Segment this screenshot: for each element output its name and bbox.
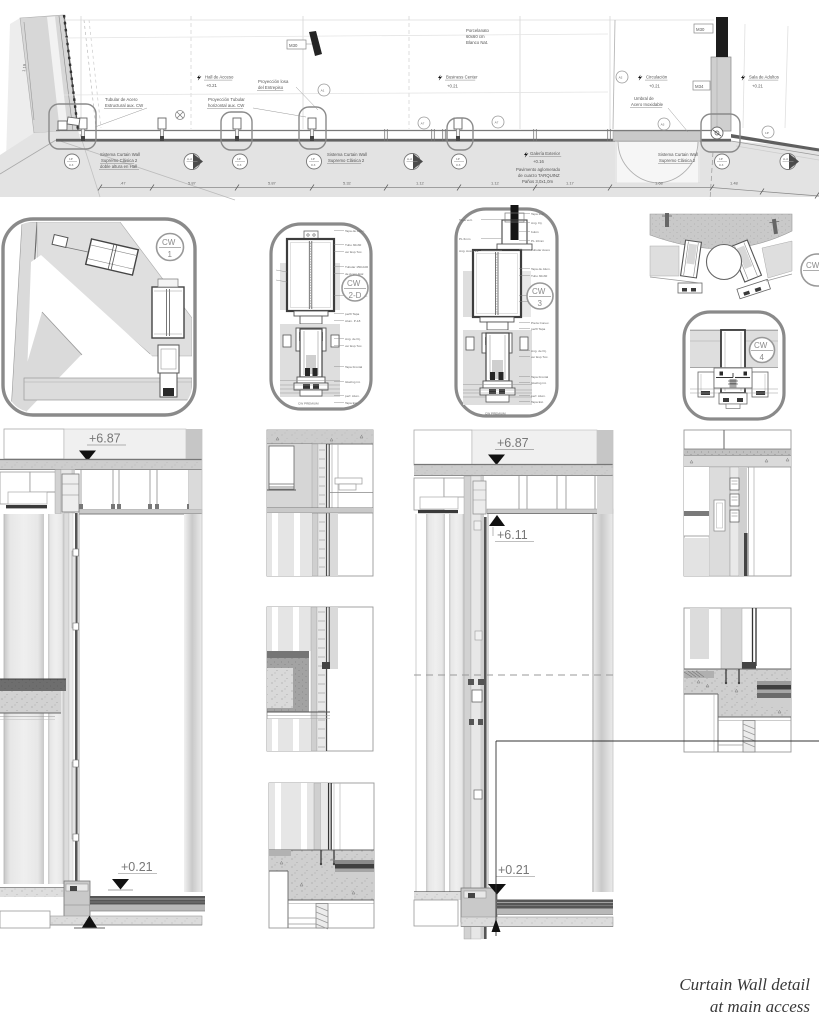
svg-text:Estructural aux. CW: Estructural aux. CW bbox=[105, 103, 144, 108]
svg-text:M30: M30 bbox=[289, 43, 298, 48]
svg-text:60x60 cm: 60x60 cm bbox=[466, 34, 485, 39]
svg-text:A7: A7 bbox=[495, 121, 499, 125]
svg-text:Sala de Adultos: Sala de Adultos bbox=[749, 75, 779, 80]
svg-text:Hall de Acceso: Hall de Acceso bbox=[205, 75, 234, 80]
svg-text:Glazing int.: Glazing int. bbox=[345, 380, 361, 384]
svg-text:Curtain Wall detail: Curtain Wall detail bbox=[679, 975, 810, 994]
svg-text:+0.21: +0.21 bbox=[206, 83, 217, 88]
svg-text:0.3: 0.3 bbox=[237, 163, 242, 167]
svg-text:de cuarzo TARQUINZ: de cuarzo TARQUINZ bbox=[518, 173, 560, 178]
svg-text:1P: 1P bbox=[765, 131, 769, 135]
svg-text:Supremo Clásica 2: Supremo Clásica 2 bbox=[101, 158, 138, 163]
svg-text:Tubular Acero: Tubular Acero bbox=[531, 248, 550, 252]
svg-text:1.48: 1.48 bbox=[730, 181, 739, 186]
svg-text:A1: A1 bbox=[321, 89, 325, 93]
svg-text:CW: CW bbox=[532, 287, 546, 296]
svg-text:perf. Alum.: perf. Alum. bbox=[345, 394, 360, 398]
svg-text:Acero Inoxidable: Acero Inoxidable bbox=[631, 102, 664, 107]
svg-text:Tapa Frontal: Tapa Frontal bbox=[531, 375, 549, 379]
svg-text:M34: M34 bbox=[695, 84, 704, 89]
svg-text:0.3: 0.3 bbox=[456, 163, 461, 167]
svg-text:+0.21: +0.21 bbox=[649, 84, 660, 89]
svg-text:Glazing int.: Glazing int. bbox=[531, 381, 547, 385]
svg-text:3: 3 bbox=[538, 299, 543, 308]
svg-text:Paños 3,0x1,0m: Paños 3,0x1,0m bbox=[522, 179, 553, 184]
svg-text:perfil Tapa: perfil Tapa bbox=[345, 312, 359, 316]
svg-text:perf. Alum.: perf. Alum. bbox=[531, 394, 546, 398]
svg-text:doble altura en Hall: doble altura en Hall bbox=[100, 164, 137, 169]
svg-text:Business Center: Business Center bbox=[446, 75, 478, 80]
svg-text:4: 4 bbox=[760, 353, 765, 362]
svg-text:A2: A2 bbox=[619, 76, 623, 80]
svg-text:Supremo Clásica 2: Supremo Clásica 2 bbox=[659, 158, 696, 163]
svg-text:Alum. P-18: Alum. P-18 bbox=[345, 319, 361, 323]
svg-text:Pieza Conex.: Pieza Conex. bbox=[531, 321, 550, 325]
svg-text:Tapa de Alum.: Tapa de Alum. bbox=[531, 267, 551, 271]
svg-text:1P: 1P bbox=[237, 157, 241, 161]
svg-text:+0.21: +0.21 bbox=[498, 863, 530, 877]
svg-text:Sistema Curtain Wall: Sistema Curtain Wall bbox=[100, 152, 140, 157]
svg-text:+0.21: +0.21 bbox=[752, 84, 763, 89]
svg-text:1.17: 1.17 bbox=[566, 181, 575, 186]
svg-text:perfil Tapa: perfil Tapa bbox=[531, 327, 545, 331]
svg-text:0.3: 0.3 bbox=[311, 163, 316, 167]
svg-text:horizontal aux. CW: horizontal aux. CW bbox=[208, 103, 245, 108]
svg-text:.47: .47 bbox=[120, 181, 126, 186]
svg-text:Tapa sup.: Tapa sup. bbox=[531, 212, 545, 216]
svg-text:1P: 1P bbox=[456, 157, 460, 161]
svg-text:A3: A3 bbox=[661, 123, 665, 127]
svg-text:+0.21: +0.21 bbox=[447, 84, 458, 89]
svg-text:1P: 1P bbox=[719, 157, 723, 161]
svg-text:Tapa de Alum.: Tapa de Alum. bbox=[345, 229, 365, 233]
svg-text:0.3: 0.3 bbox=[719, 163, 724, 167]
svg-text:+6.87: +6.87 bbox=[89, 432, 121, 446]
svg-text:+6.11: +6.11 bbox=[497, 528, 528, 542]
svg-text:CW: CW bbox=[806, 261, 819, 270]
svg-text:at main access: at main access bbox=[710, 997, 810, 1016]
svg-text:Tubo 30x30: Tubo 30x30 bbox=[531, 274, 548, 278]
svg-text:Sistema Curtain Wall: Sistema Curtain Wall bbox=[327, 152, 367, 157]
svg-text:Tapa Ext.: Tapa Ext. bbox=[531, 400, 544, 404]
svg-text:Ang. Fij.: Ang. Fij. bbox=[531, 221, 542, 225]
svg-text:Porcelanato: Porcelanato bbox=[466, 28, 490, 33]
svg-text:5.87: 5.87 bbox=[268, 181, 277, 186]
svg-text:Ang. Acero 2L: Ang. Acero 2L bbox=[459, 249, 479, 253]
svg-text:del Entrepiso: del Entrepiso bbox=[258, 85, 284, 90]
svg-text:Tubular de Acero: Tubular de Acero bbox=[105, 97, 138, 102]
svg-text:1.68: 1.68 bbox=[655, 181, 664, 186]
svg-text:1.12: 1.12 bbox=[491, 181, 500, 186]
svg-text:1: 1 bbox=[168, 250, 173, 259]
svg-text:CW: CW bbox=[347, 279, 361, 288]
svg-text:Circulación: Circulación bbox=[646, 75, 668, 80]
svg-text:Pavimento aglomerado: Pavimento aglomerado bbox=[516, 167, 561, 172]
svg-text:ver Esp.Téc.: ver Esp.Téc. bbox=[345, 344, 363, 348]
svg-text:Ang. de Fij.: Ang. de Fij. bbox=[531, 349, 547, 353]
svg-text:CW PREMIUM: CW PREMIUM bbox=[298, 402, 319, 406]
svg-text:Proyección Tubular: Proyección Tubular bbox=[208, 97, 245, 102]
svg-text:ver Esp.Téc.: ver Esp.Téc. bbox=[531, 355, 549, 359]
svg-text:A7: A7 bbox=[421, 122, 425, 126]
svg-text:Tapa Ext.: Tapa Ext. bbox=[345, 401, 358, 405]
svg-text:M30: M30 bbox=[696, 27, 705, 32]
svg-text:CW: CW bbox=[754, 341, 768, 350]
svg-text:1P: 1P bbox=[69, 157, 73, 161]
svg-text:Supremo Clásica 2: Supremo Clásica 2 bbox=[328, 158, 365, 163]
svg-text:PL 6mm: PL 6mm bbox=[459, 237, 471, 241]
svg-text:CW PREMIUM: CW PREMIUM bbox=[485, 412, 506, 416]
svg-text:Ang. de Fij.: Ang. de Fij. bbox=[345, 337, 361, 341]
svg-text:CW: CW bbox=[162, 238, 176, 247]
svg-text:Umbral de: Umbral de bbox=[634, 96, 654, 101]
svg-text:+6.87: +6.87 bbox=[497, 436, 529, 450]
svg-text:5.32: 5.32 bbox=[343, 181, 352, 186]
svg-text:1P: 1P bbox=[311, 157, 315, 161]
svg-text:Tapa Frontal: Tapa Frontal bbox=[345, 365, 363, 369]
svg-text:Tubular 150x100: Tubular 150x100 bbox=[345, 265, 368, 269]
svg-text:Tubo 30x30: Tubo 30x30 bbox=[345, 243, 362, 247]
svg-text:1.12: 1.12 bbox=[416, 181, 425, 186]
svg-text:Sistema Curtain Wall: Sistema Curtain Wall bbox=[658, 152, 698, 157]
svg-text:2-D: 2-D bbox=[349, 291, 362, 300]
svg-text:+0.16: +0.16 bbox=[533, 159, 544, 164]
svg-text:bulón: bulón bbox=[531, 230, 539, 234]
svg-text:5.87: 5.87 bbox=[188, 181, 197, 186]
svg-text:Proyección losa: Proyección losa bbox=[258, 79, 289, 84]
svg-text:Blanco Nat.: Blanco Nat. bbox=[466, 40, 488, 45]
svg-text:Tapa vert.: Tapa vert. bbox=[459, 218, 473, 222]
svg-text:+0.21: +0.21 bbox=[121, 860, 153, 874]
svg-text:PL 10mm: PL 10mm bbox=[531, 239, 545, 243]
svg-text:Galería Exterior: Galería Exterior bbox=[530, 151, 561, 156]
svg-text:ver Esp.Téc.: ver Esp.Téc. bbox=[345, 250, 363, 254]
svg-text:0.3: 0.3 bbox=[69, 163, 74, 167]
